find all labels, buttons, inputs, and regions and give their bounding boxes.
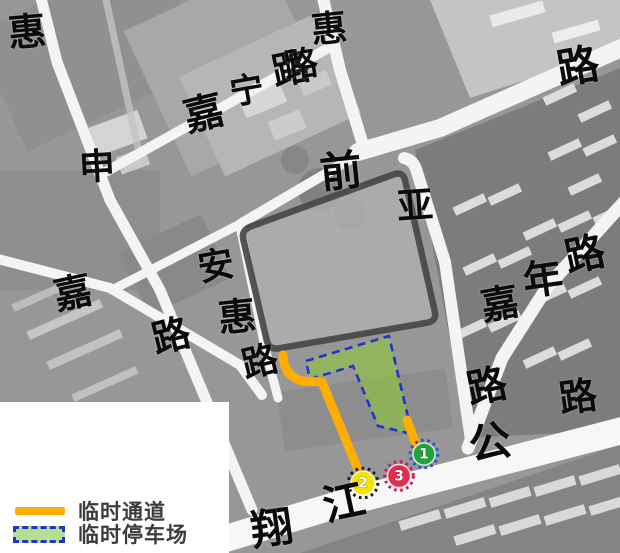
marker-number: 2 (358, 476, 368, 492)
legend: 临时通道 临时停车场 (0, 402, 229, 553)
annotated-satellite-map: 123 惠申嘉宁路惠路路前亚安惠路嘉路嘉年路路翔江公路 临时通道 临时停车场 (0, 0, 620, 553)
legend-label-parking: 临时停车场 (78, 519, 188, 549)
temporary-passage-swatch (15, 507, 65, 515)
marker-number: 3 (394, 469, 404, 485)
marker-number: 1 (419, 447, 429, 463)
temporary-parking-swatch (13, 526, 65, 543)
legend-row-parking: 临时停车场 (13, 519, 188, 549)
